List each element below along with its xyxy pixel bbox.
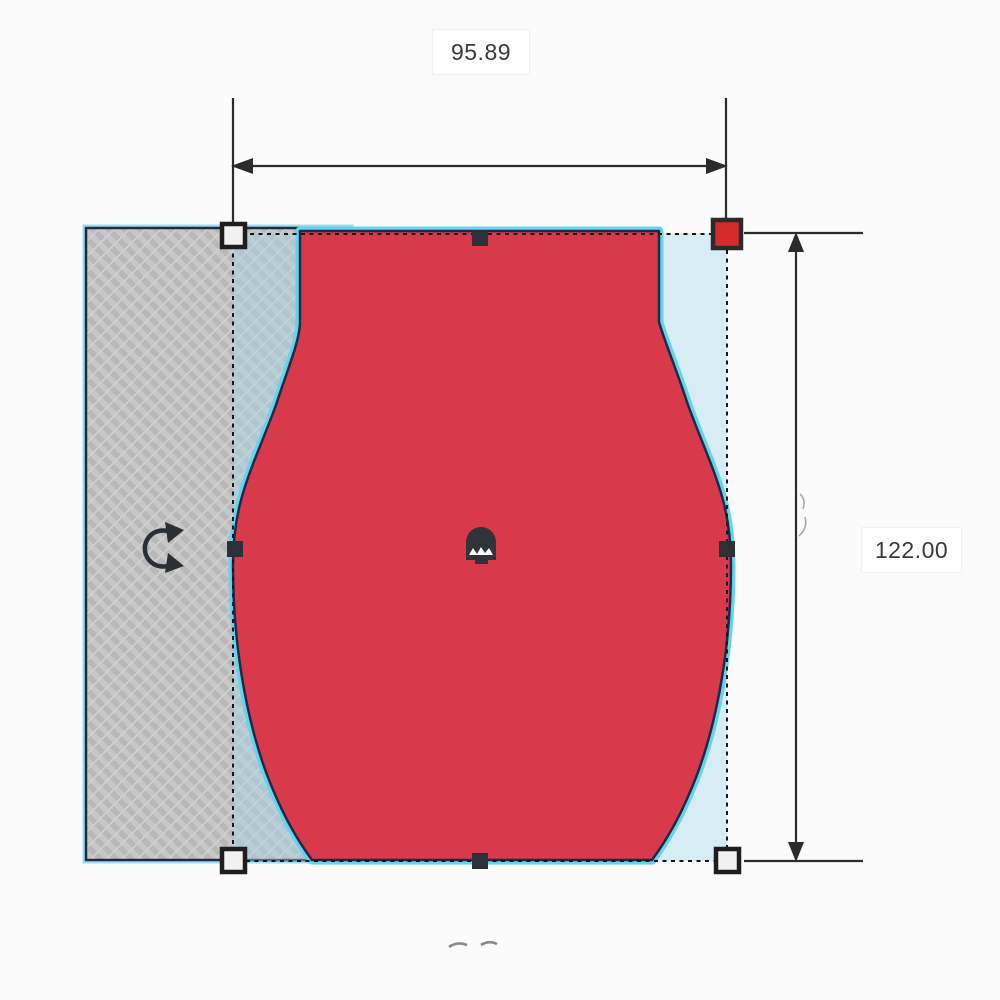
scale-handle-top[interactable]	[472, 230, 488, 246]
scale-handle-bottom-left[interactable]	[222, 849, 245, 872]
leader-curl-artifact	[799, 494, 806, 536]
shape-center-handle-icon[interactable]	[466, 527, 496, 564]
clipped-text-artifact	[449, 942, 497, 947]
height-dim-arrow-down	[788, 842, 804, 862]
width-dim-arrow-right	[706, 158, 728, 174]
design-canvas[interactable]: 95.89 122.00	[0, 0, 1000, 1000]
scale-handle-bottom[interactable]	[472, 853, 488, 869]
scale-handle-left[interactable]	[227, 541, 243, 557]
height-dimension-input[interactable]: 122.00	[861, 527, 962, 573]
width-dimension-input[interactable]: 95.89	[432, 29, 530, 75]
scale-handle-right[interactable]	[719, 541, 735, 557]
scale-handle-top-left[interactable]	[222, 224, 245, 247]
width-dimension-lines	[233, 98, 726, 224]
scale-handle-bottom-right[interactable]	[716, 849, 739, 872]
height-dim-arrow-up	[788, 232, 804, 252]
height-dimension-lines	[744, 233, 863, 861]
scale-handle-top-right-active[interactable]	[713, 220, 741, 248]
canvas-drawing	[0, 0, 1000, 1000]
width-dim-arrow-left	[231, 158, 253, 174]
